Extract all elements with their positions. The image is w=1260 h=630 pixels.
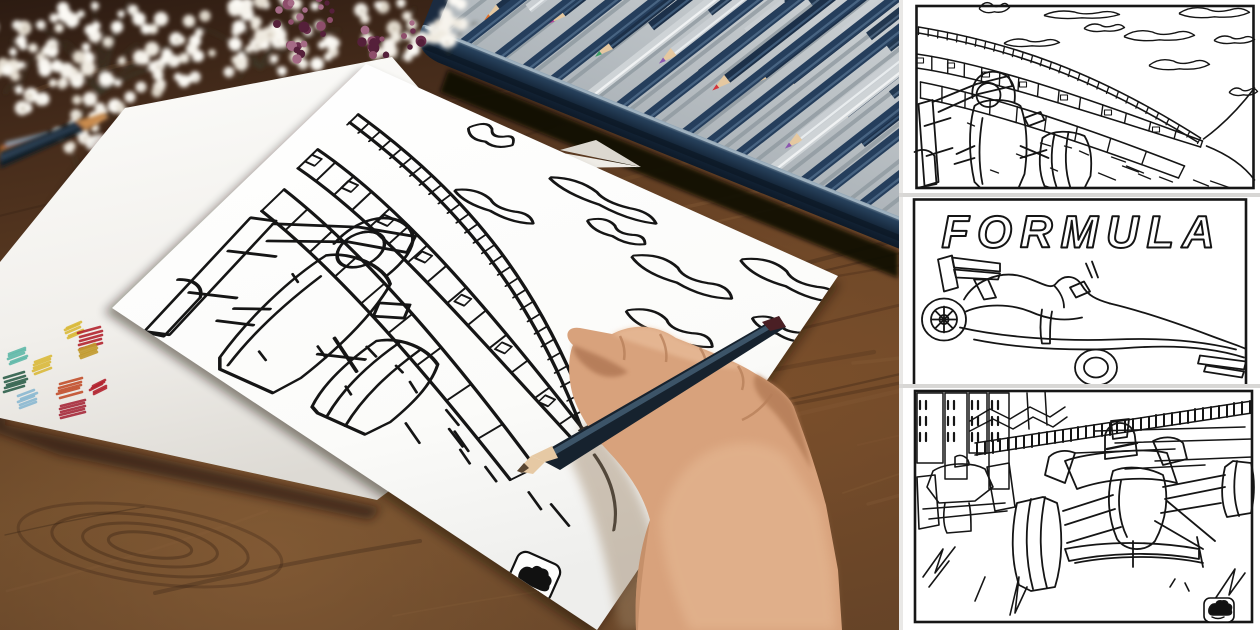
svg-text:FORMULA: FORMULA [942, 207, 1223, 258]
